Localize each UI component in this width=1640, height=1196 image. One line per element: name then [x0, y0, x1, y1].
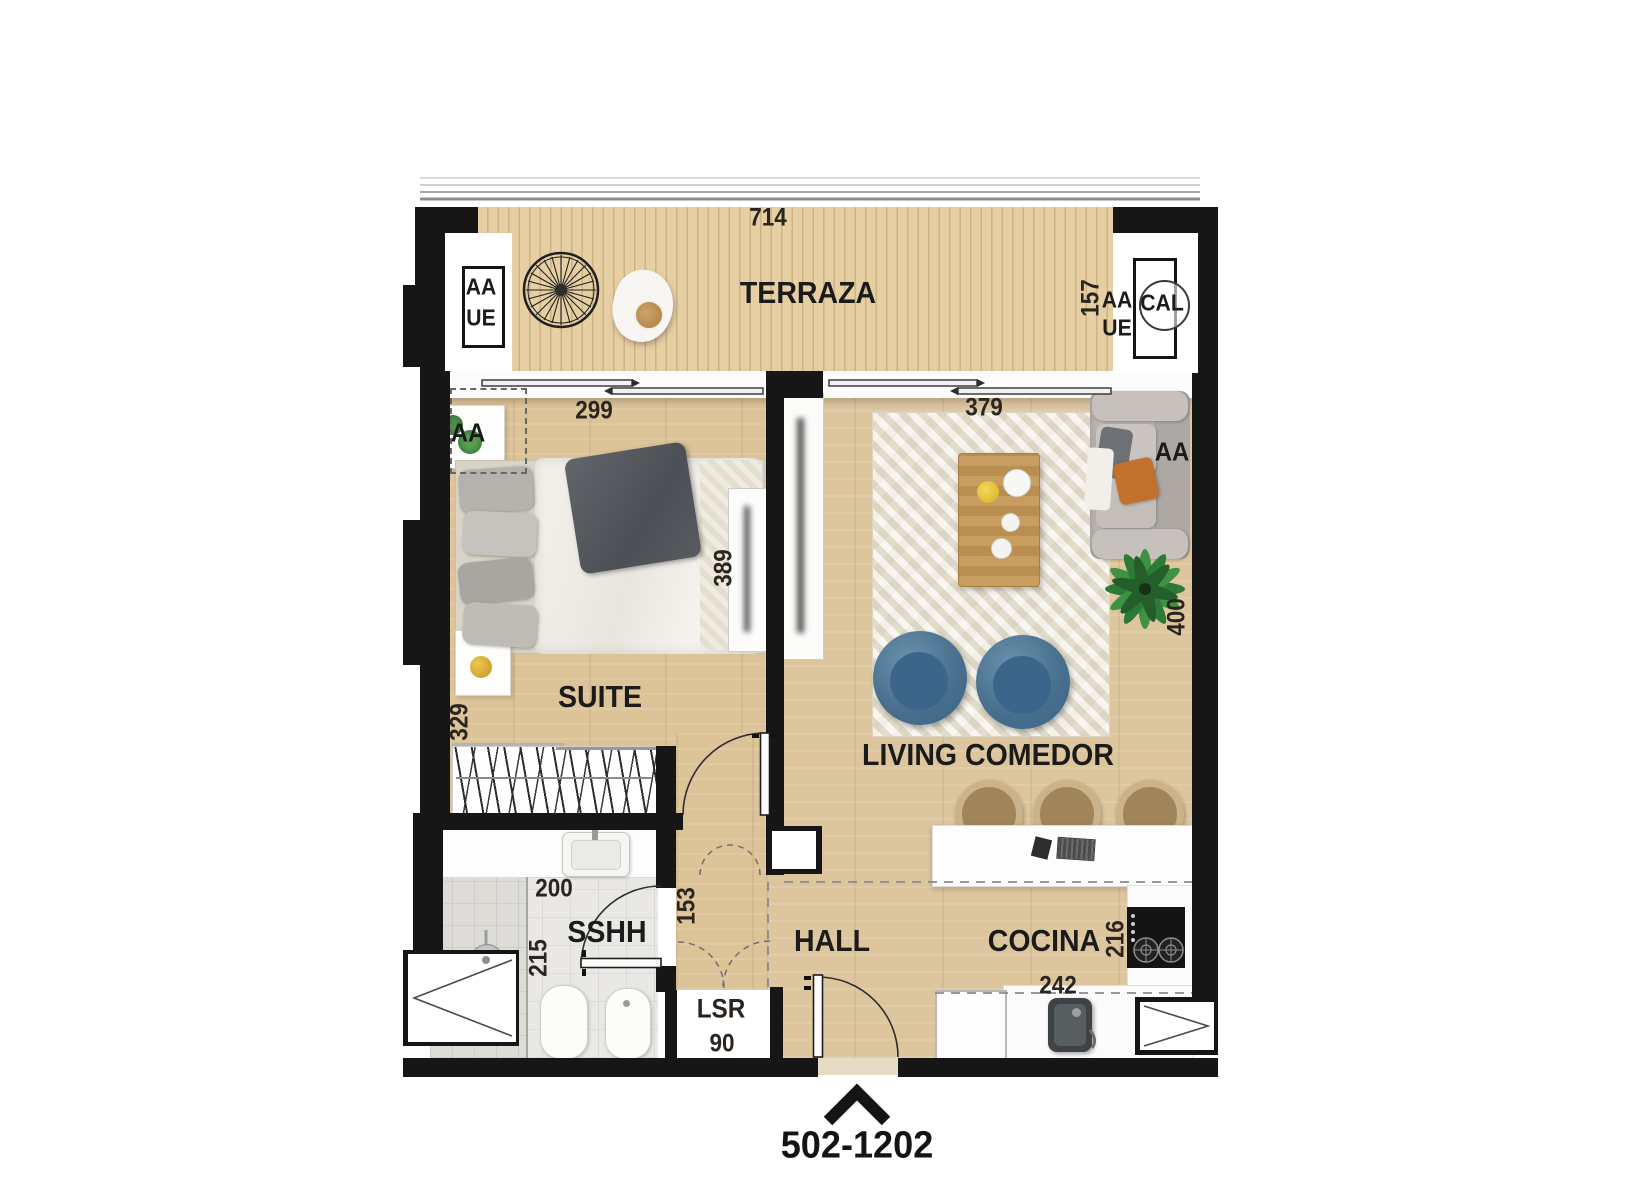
wall	[403, 1058, 818, 1077]
armchair-blue-seat	[890, 652, 948, 710]
terraza-tray-icon	[634, 300, 664, 330]
sofa-armrest	[1092, 529, 1188, 559]
wall	[656, 966, 676, 992]
bathroom-sink-basin	[571, 840, 621, 870]
wall	[656, 746, 676, 813]
wardrobe-slider-door	[556, 747, 656, 750]
wall	[898, 1058, 1218, 1077]
room-label-lsr: LSR	[697, 994, 746, 1025]
ac-right-label-aa: AA	[1102, 287, 1133, 314]
entry-threshold	[818, 1058, 898, 1075]
toilet	[540, 985, 588, 1059]
gold-lamp-icon	[470, 656, 492, 678]
armchair-blue-seat	[993, 656, 1051, 714]
room-label-suite: SUITE	[558, 679, 642, 715]
wall	[420, 365, 450, 815]
kitchen-sink-basin	[1054, 1004, 1086, 1046]
room-label-hall: HALL	[794, 923, 870, 959]
unit-number-label: 502-1202	[781, 1125, 934, 1168]
room-label-cocina: COCINA	[988, 923, 1100, 959]
wall	[413, 813, 443, 953]
living-console-object	[797, 418, 804, 633]
wardrobe	[452, 746, 658, 815]
dim-389: 389	[710, 549, 739, 587]
floor-plan-canvas: TERRAZA SUITE LIVING COMEDOR SSHH HALL C…	[0, 0, 1640, 1196]
dim-90: 90	[709, 1030, 734, 1059]
bowl-yellow-icon	[977, 481, 999, 503]
wall	[413, 813, 683, 830]
wall	[665, 990, 677, 1058]
dim-299: 299	[575, 397, 613, 426]
sink-drain-icon	[1072, 1008, 1081, 1017]
wardrobe-slider-door	[452, 743, 564, 746]
wall	[1135, 997, 1218, 1055]
faucet-icon	[592, 830, 598, 840]
wall	[403, 520, 421, 665]
cooktop	[1127, 907, 1185, 968]
wall-niche	[772, 831, 816, 869]
room-label-sshh: SSHH	[567, 914, 646, 950]
ac-suite-label: AA	[451, 418, 486, 449]
dim-215: 215	[525, 939, 554, 977]
dim-714: 714	[749, 204, 787, 233]
wall	[766, 371, 823, 398]
heater-label-cal: CAL	[1140, 290, 1183, 317]
dim-242: 242	[1039, 972, 1077, 1001]
bed-pillow	[462, 510, 538, 558]
wardrobe-rail	[456, 777, 652, 779]
wall	[403, 285, 417, 367]
terraza-railing	[420, 178, 1200, 199]
dim-153: 153	[673, 887, 702, 925]
corridor-floor	[676, 733, 768, 990]
bed-pillow	[462, 601, 539, 648]
bed-throw-blanket	[564, 441, 703, 575]
cup-icon	[991, 538, 1012, 559]
sofa-armrest	[1092, 391, 1188, 421]
wall	[766, 371, 784, 875]
ac-right-label-ue: UE	[1102, 315, 1131, 342]
vase-white-icon	[1003, 469, 1031, 497]
throw-white-icon	[1084, 447, 1114, 511]
ac-left-label-ue: UE	[466, 305, 495, 332]
ac-living-label: AA	[1155, 437, 1190, 468]
bidet-faucet-icon	[623, 1000, 630, 1007]
dim-400: 400	[1163, 598, 1192, 636]
fridge	[935, 990, 1007, 1061]
room-label-living: LIVING COMEDOR	[862, 737, 1114, 773]
wall	[770, 987, 783, 1058]
unit-arrow-icon	[828, 1092, 886, 1121]
dim-379: 379	[965, 394, 1003, 423]
wall	[415, 207, 445, 367]
pillow-orange-icon	[1112, 456, 1160, 505]
dim-216: 216	[1102, 920, 1131, 958]
dim-200: 200	[535, 875, 573, 904]
dim-329: 329	[446, 703, 475, 741]
suite-console-object	[744, 506, 750, 632]
wall	[656, 830, 676, 888]
cup-icon	[1001, 513, 1020, 532]
keyboard-icon	[1056, 837, 1095, 862]
bed-pillow	[457, 556, 535, 606]
wall	[403, 950, 519, 1046]
ac-left-label-aa: AA	[466, 274, 497, 301]
bidet	[605, 988, 651, 1059]
room-label-terraza: TERRAZA	[740, 275, 876, 311]
